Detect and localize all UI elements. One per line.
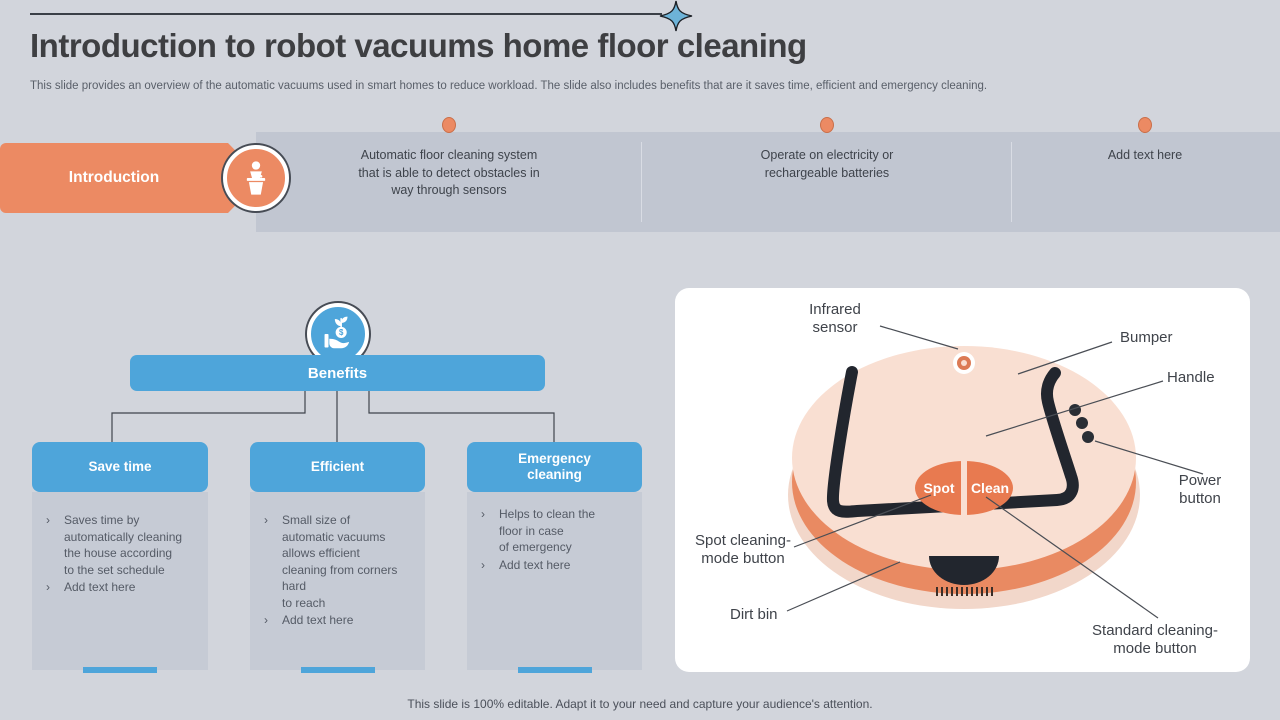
column-accent-bar (83, 667, 157, 673)
timeline-dot (820, 117, 834, 133)
label-infrared-sensor: Infrared sensor (780, 301, 890, 337)
column-header: Save time (32, 442, 208, 492)
column-header: Emergency cleaning (467, 442, 642, 492)
benefit-column-efficient: Efficient Small size of automatic vacuum… (250, 442, 425, 670)
column-title: Efficient (311, 459, 364, 475)
column-accent-bar (301, 667, 375, 673)
clean-button-label: Clean (971, 480, 1009, 496)
column-title: Emergency cleaning (499, 451, 611, 483)
timeline-dot (1138, 117, 1152, 133)
introduction-icon-circle (223, 145, 289, 211)
introduction-label: Introduction (0, 143, 228, 213)
page-subtitle: This slide provides an overview of the a… (30, 80, 987, 92)
robot-top (792, 346, 1136, 570)
slide: Introduction to robot vacuums home floor… (0, 0, 1280, 720)
list-item: Saves time by automatically cleaning the… (42, 512, 198, 578)
timeline-item-2: Operate on electricity or rechargeable b… (727, 147, 927, 182)
column-body: Helps to clean the floor in case of emer… (467, 492, 642, 670)
timeline-item-1: Automatic floor cleaning system that is … (334, 147, 564, 200)
timeline-dot (442, 117, 456, 133)
list-item: Small size of automatic vacuums allows e… (260, 512, 415, 611)
spot-button-label: Spot (923, 480, 954, 496)
robot-diagram-panel: Spot Clean (675, 288, 1250, 672)
benefit-column-emergency: Emergency cleaning Helps to clean the fl… (467, 442, 642, 670)
list-item[interactable]: Add text here (42, 579, 198, 596)
page-title: Introduction to robot vacuums home floor… (30, 27, 807, 65)
list-item[interactable]: Add text here (260, 612, 415, 629)
benefits-bar: Benefits (130, 355, 545, 391)
infrared-sensor (953, 352, 975, 374)
list-item[interactable]: Add text here (477, 557, 632, 574)
column-title: Save time (88, 459, 151, 475)
benefit-column-save-time: Save time Saves time by automatically cl… (32, 442, 208, 670)
header-rule (30, 13, 662, 15)
presenter-podium-icon (236, 158, 276, 198)
label-power-button: Power button (1160, 472, 1240, 508)
label-standard-mode-button: Standard cleaning- mode button (1070, 622, 1240, 658)
hand-coin-sprout-icon: $ (319, 315, 357, 353)
band-divider (641, 142, 642, 222)
timeline-item-3[interactable]: Add text here (1065, 147, 1225, 165)
column-header: Efficient (250, 442, 425, 492)
label-dirt-bin: Dirt bin (730, 606, 778, 624)
list-item: Helps to clean the floor in case of emer… (477, 506, 632, 556)
column-accent-bar (518, 667, 592, 673)
footer-note: This slide is 100% editable. Adapt it to… (0, 697, 1280, 711)
column-body: Small size of automatic vacuums allows e… (250, 492, 425, 670)
label-handle: Handle (1167, 369, 1215, 387)
label-bumper: Bumper (1120, 329, 1173, 347)
column-body: Saves time by automatically cleaning the… (32, 492, 208, 670)
svg-text:$: $ (339, 328, 344, 337)
band-divider (1011, 142, 1012, 222)
label-spot-mode-button: Spot cleaning- mode button (678, 532, 808, 568)
